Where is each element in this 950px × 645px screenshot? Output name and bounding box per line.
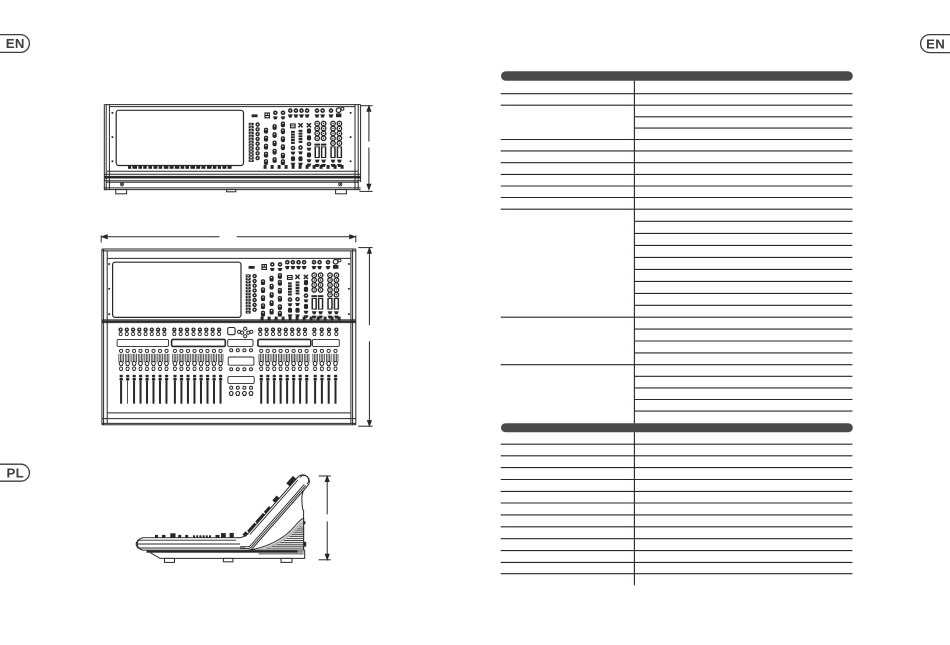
svg-text:EN: EN <box>926 36 945 51</box>
svg-text:PL: PL <box>6 465 23 480</box>
svg-text:EN: EN <box>6 36 25 51</box>
